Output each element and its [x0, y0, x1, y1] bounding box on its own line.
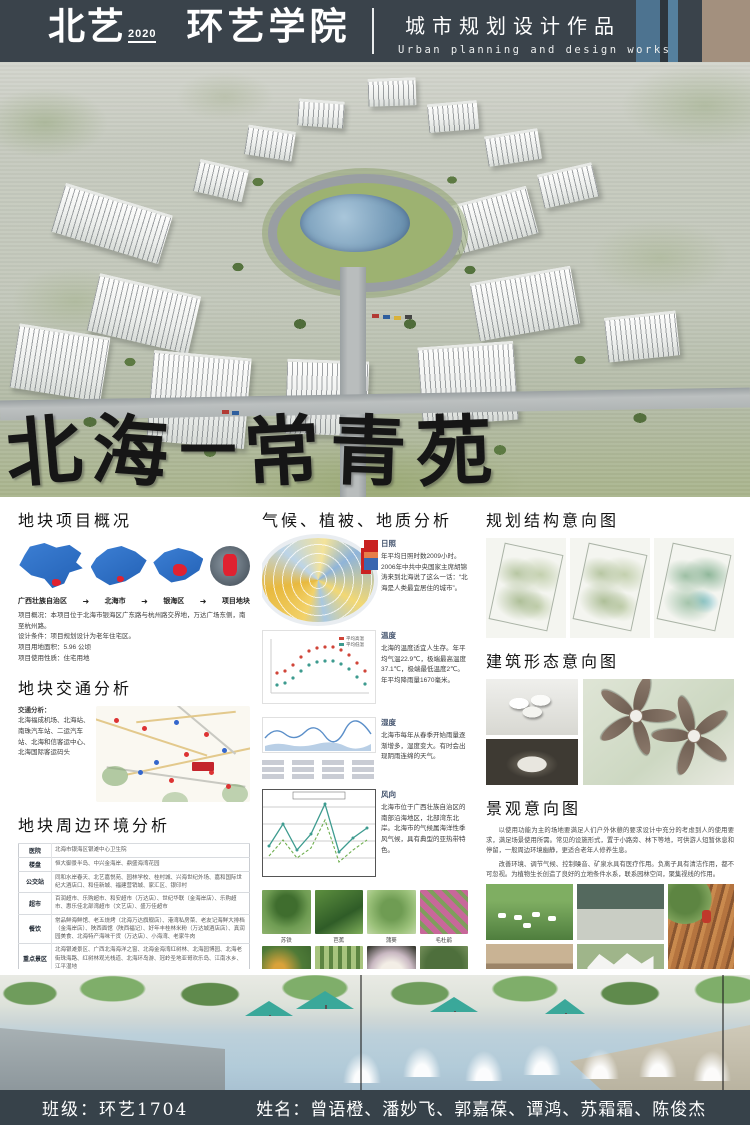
- wind-chart-svg: [262, 789, 376, 877]
- block-body: 北海市位于广西壮族自治区的南部沿海地区，北部湾东北岸。北海市的气候属海洋性季风气…: [381, 803, 468, 857]
- traffic-body: 北海福成机场、北海站、南珠汽车站、二运汽车站、北海和信客运中心、北海国际客运码头: [18, 716, 90, 759]
- photo-plaza: [577, 884, 664, 940]
- plant-label: 芭蕉: [315, 936, 364, 944]
- sunshine-block: 日照 年平均日照时数2009小时。2006年中共中央国家主席胡锦涛来到北海说了这…: [262, 538, 468, 622]
- project-title-calligraphy: 北 海 — 常 青 苑: [6, 414, 526, 490]
- wind-text: 风向 北海市位于广西壮族自治区的南部沿海地区，北部湾东北岸。北海市的气候属海洋性…: [381, 789, 468, 882]
- humidity-text: 湿度 北海市每年从春季开始雨量逐渐增多，湿度变大。有时会出现阴雨连绵的天气。: [381, 717, 468, 781]
- block-heading: 湿度: [381, 717, 468, 728]
- photo-outdoor-cafe: [486, 944, 573, 969]
- transit-map: [96, 706, 250, 802]
- plant-label: 毛杜鹃: [420, 936, 469, 944]
- building-form-images: [486, 679, 734, 785]
- traffic-heading: 交通分析：: [18, 706, 90, 717]
- site-locator-map: [210, 546, 250, 586]
- title-char: 北: [3, 411, 85, 493]
- plant-photo: [315, 890, 364, 934]
- logo-secondary: 环艺学院: [186, 8, 350, 45]
- landscape-paragraph-2: 改善环境、调节气候、控制噪音、矿泉水具有医疗作用。负离子具有清洁作用，都不可忽视…: [486, 860, 734, 880]
- step-label: 项目地块: [222, 596, 250, 606]
- landscape-photos: [486, 884, 734, 969]
- column-design-intentions: 规划结构意向图 建筑形态意向图: [486, 507, 734, 969]
- traffic-text: 交通分析： 北海福成机场、北海站、南珠汽车站、二运汽车站、北海和信客运中心、北海…: [18, 706, 90, 802]
- plant-item: 蒲葵: [367, 890, 416, 944]
- plant-label: 苏铁: [262, 936, 311, 944]
- poster-body: 地块项目概况 广西壮族自治区 ➜ 北海市 ➜ 银海区 ➜ 项目地块 项目概况：本…: [0, 497, 750, 975]
- block-body: 北海的温度适宜人生存。年平均气温22.9℃，极端最高温度37.1℃，极端最低温度…: [381, 644, 468, 687]
- section-title-site-overview: 地块项目概况: [18, 507, 250, 531]
- poster-title-en: Urban planning and design works: [398, 44, 628, 56]
- table-row: 超市 百润超市、乐购超市、和安超市（万达店）、世纪华联（金海岸店）、乐购超市、惠…: [19, 893, 250, 915]
- temperature-text: 温度 北海的温度适宜人生存。年平均气温22.9℃，极端最高温度37.1℃，极端最…: [381, 630, 468, 709]
- logo-year: 2020: [128, 28, 156, 43]
- fountain-spray: [690, 1039, 734, 1081]
- guangxi-map: [91, 546, 147, 586]
- section-title-traffic: 地块交通分析: [18, 675, 250, 699]
- fountain-plaza-panorama: [0, 975, 750, 1090]
- row-label: 餐饮: [19, 914, 52, 944]
- header-divider: [372, 8, 374, 54]
- location-maps: [18, 538, 250, 594]
- logo-primary: 北艺: [48, 8, 126, 45]
- china-map: [18, 543, 84, 589]
- row-content: 百润超市、乐购超市、和安超市（万达店）、世纪华联（金海岸店）、乐购超市、惠乐佳北…: [52, 893, 250, 915]
- sunpath-chart: [262, 538, 374, 622]
- school-logo: 北艺 2020 环艺学院: [48, 8, 350, 45]
- planning-diagrams: [486, 538, 734, 638]
- temperature-chart: 平均高温 平均低温: [262, 630, 374, 709]
- plant-label: 蒲葵: [367, 936, 416, 944]
- yinhai-district-map: [153, 548, 203, 584]
- wind-block: 风向 北海市位于广西壮族自治区的南部沿海地区，北部湾东北岸。北海市的气候属海洋性…: [262, 789, 468, 882]
- section-title-climate: 气候、植被、地质分析: [262, 507, 468, 531]
- fountain-spray: [462, 1039, 506, 1081]
- arrow-icon: ➜: [200, 597, 207, 606]
- fountain-spray: [578, 1037, 622, 1079]
- green-areas: [102, 766, 128, 786]
- landscape-paragraph-1: 以使用功能为主的场地要满足人们户外休憩的要求设计中充分的考虑到人的使用要求，满足…: [486, 826, 734, 856]
- masterplan-aerial-rendering: 北 海 — 常 青 苑: [0, 62, 750, 497]
- table-row: 餐饮 常品鲜海鲜馆、老五烧烤（北海万达旗舰店）、港湾私房菜、老友记海鲜大排档（金…: [19, 914, 250, 944]
- plant-photo: [367, 946, 416, 969]
- overview-line: 项目用地面积：5.96 公顷: [18, 643, 250, 654]
- fountain-spray: [340, 1041, 384, 1083]
- plant-item: 高山榕: [420, 946, 469, 969]
- poster-footer: 班级：环艺1704 姓名：曾语橙、潘妙飞、郭嘉葆、谭鸿、苏霜霜、陈俊杰: [0, 1090, 750, 1125]
- plant-photo: [262, 946, 311, 969]
- planning-diagram-2: [570, 538, 650, 638]
- humidity-block: 湿度 北海市每年从春季开始雨量逐渐增多，湿度变大。有时会出现阴雨连绵的天气。: [262, 717, 468, 781]
- parked-cars: [372, 314, 379, 318]
- row-label: 重点景区: [19, 944, 52, 969]
- svg-text:平均低温: 平均低温: [346, 641, 364, 648]
- plant-item: 毛杜鹃: [420, 890, 469, 944]
- block-heading: 温度: [381, 630, 468, 641]
- plant-item: 苏铁: [262, 890, 311, 944]
- photo-lawn-chairs: [486, 884, 573, 940]
- column-site-analysis: 地块项目概况 广西壮族自治区 ➜ 北海市 ➜ 银海区 ➜ 项目地块 项目概况：本…: [18, 507, 250, 969]
- building-form-models: [486, 679, 578, 785]
- temperature-block: 平均高温 平均低温 温度 北海的温度适宜人生存。年平均气温22.9℃，极端最高温…: [262, 630, 468, 709]
- traffic-analysis: 交通分析： 北海福成机场、北海站、南珠汽车站、二运汽车站、北海和信客运中心、北海…: [18, 706, 250, 802]
- row-label: 楼盘: [19, 857, 52, 871]
- table-row: 重点景区 北海银滩景区、广西北海海洋之窗、北海金海湾红树林、北海园博园、北海老街…: [19, 944, 250, 969]
- block-body: 年平均日照时数2009小时。2006年中共中央国家主席胡锦涛来到北海说了这么一话…: [381, 552, 468, 595]
- poster-header: 北艺 2020 环艺学院 城市规划设计作品 Urban planning and…: [0, 0, 750, 62]
- location-steps: 广西壮族自治区 ➜ 北海市 ➜ 银海区 ➜ 项目地块: [18, 596, 250, 606]
- plant-photo: [420, 946, 469, 969]
- photo-canopy-pavilion: [577, 944, 664, 969]
- names-label: 姓名：曾语橙、潘妙飞、郭嘉葆、谭鸿、苏霜霜、陈俊杰: [256, 1095, 706, 1120]
- fountain-spray: [400, 1035, 444, 1077]
- header-title-block: 城市规划设计作品 Urban planning and design works: [398, 10, 628, 56]
- title-char: 苑: [415, 413, 494, 492]
- wind-chart: [262, 789, 374, 882]
- poster-title-cn: 城市规划设计作品: [398, 10, 628, 39]
- project-overview-text: 项目概况：本项目位于北海市银海区广东路与杭州路交界地，万达广场东侧，南至杭州路。…: [18, 611, 250, 665]
- title-char: —: [178, 414, 234, 474]
- class-label: 班级：环艺1704: [42, 1095, 188, 1120]
- row-label: 超市: [19, 893, 52, 915]
- row-content: 恒大御景半岛、中兴金海岸、鼎盛海湾花园: [52, 857, 250, 871]
- step-label: 银海区: [163, 596, 184, 606]
- table-row: 公交站 同和水岸春天、北艺嘉悦苑、园林学校、桂村城、兴海世纪外场、嘉和国际世纪大…: [19, 871, 250, 893]
- sunpath-bars: [364, 540, 378, 570]
- row-content: 常品鲜海鲜馆、老五烧烤（北海万达旗舰店）、港湾私房菜、老友记海鲜大排档（金海岸店…: [52, 914, 250, 944]
- landscape-photo-grid: [486, 884, 664, 969]
- row-content: 北海银滩景区、广西北海海洋之窗、北海金海湾红树林、北海园博园、北海老街珠海路、红…: [52, 944, 250, 969]
- arrow-icon: ➜: [82, 597, 89, 606]
- plant-photo: [367, 890, 416, 934]
- section-title-planning: 规划结构意向图: [486, 507, 734, 531]
- arrow-icon: ➜: [141, 597, 148, 606]
- row-content: 北海市银海区银滩中心卫生院: [52, 843, 250, 857]
- fountain-spray: [520, 1033, 564, 1075]
- plant-item: 三角梅: [262, 946, 311, 969]
- block-heading: 风向: [381, 789, 468, 800]
- panel-seam: [360, 975, 362, 1090]
- row-label: 公交站: [19, 871, 52, 893]
- title-char: 青: [329, 413, 408, 492]
- humidity-chart: [262, 717, 374, 781]
- temperature-chart-svg: 平均高温 平均低温: [262, 630, 376, 704]
- sunpath-diagram: [262, 538, 374, 622]
- plant-item: 佛肚竹: [315, 946, 364, 969]
- road-line: [96, 717, 207, 756]
- svg-text:平均高温: 平均高温: [346, 635, 364, 642]
- overview-line: 项目概况：本项目位于北海市银海区广东路与杭州路交界地，万达广场东侧，南至杭州路。: [18, 611, 250, 632]
- section-title-building-form: 建筑形态意向图: [486, 648, 734, 672]
- overview-line: 设计条件：项目规划设计为老年住宅区。: [18, 632, 250, 643]
- block-body: 北海市每年从春季开始雨量逐渐增多，湿度变大。有时会出现阴雨连绵的天气。: [381, 731, 468, 763]
- flower-plan-aerial: [583, 679, 734, 785]
- plant-photo: [262, 890, 311, 934]
- column-climate-analysis: 气候、植被、地质分析 日照 年平均日照时数2009小时。2006年中共中央国家主…: [262, 507, 468, 969]
- sunshine-text: 日照 年平均日照时数2009小时。2006年中共中央国家主席胡锦涛来到北海说了这…: [381, 538, 468, 622]
- section-title-surroundings: 地块周边环境分析: [18, 812, 250, 836]
- palm-canopy: [0, 975, 750, 1021]
- humidity-mini-table: [262, 760, 374, 779]
- transit-stations: [114, 718, 119, 723]
- plants-row1: 苏铁 芭蕉 蒲葵 毛杜鹃: [262, 890, 468, 944]
- planning-diagram-1: [486, 538, 566, 638]
- title-char: 常: [242, 412, 322, 492]
- title-char: 海: [89, 411, 170, 492]
- overview-line: 项目使用性质：住宅用地: [18, 654, 250, 665]
- table-row: 楼盘 恒大御景半岛、中兴金海岸、鼎盛海湾花园: [19, 857, 250, 871]
- header-stripe-tan: [702, 0, 750, 62]
- planning-diagram-3: [654, 538, 734, 638]
- site-marker: [192, 762, 214, 771]
- section-title-landscape: 景观意向图: [486, 795, 734, 819]
- plant-photo: [420, 890, 469, 934]
- photo-curved-bench: [668, 884, 734, 969]
- plant-item: 芭蕉: [315, 890, 364, 944]
- row-label: 医院: [19, 843, 52, 857]
- humidity-chart-svg: [262, 717, 376, 753]
- table-row: 医院 北海市银海区银滩中心卫生院: [19, 843, 250, 857]
- plaza-wall: [0, 1021, 225, 1090]
- flower-model-photo: [486, 679, 578, 735]
- step-label: 北海市: [105, 596, 126, 606]
- step-label: 广西壮族自治区: [18, 596, 67, 606]
- plant-item: 白玉兰: [367, 946, 416, 969]
- fountain-spray: [636, 1035, 680, 1077]
- row-content: 同和水岸春天、北艺嘉悦苑、园林学校、桂村城、兴海世纪外场、嘉和国际世纪大酒店口、…: [52, 871, 250, 893]
- surroundings-table: 医院 北海市银海区银滩中心卫生院 楼盘 恒大御景半岛、中兴金海岸、鼎盛海湾花园 …: [18, 843, 250, 969]
- panel-seam: [722, 975, 724, 1090]
- plant-photo: [315, 946, 364, 969]
- plants-row2: 三角梅 佛肚竹 白玉兰 高山榕: [262, 946, 468, 969]
- block-heading: 日照: [381, 538, 468, 549]
- flower-night-photo: [486, 739, 578, 785]
